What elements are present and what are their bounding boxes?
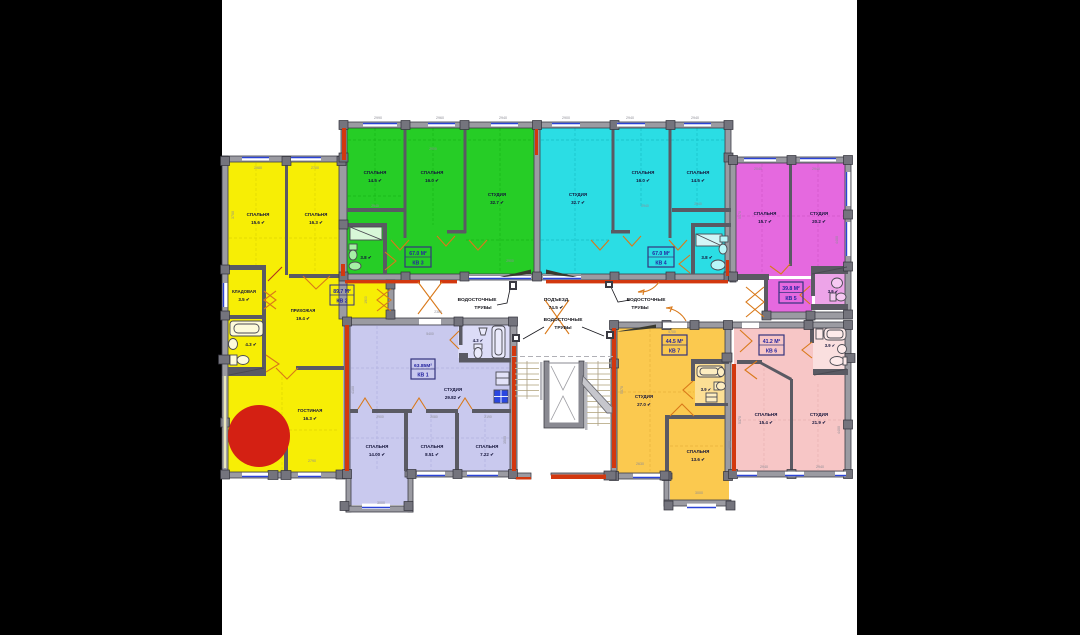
svg-text:ВОДОСТОЧНЫЕ: ВОДОСТОЧНЫЕ [544,317,584,323]
svg-text:2900: 2900 [506,259,514,263]
svg-text:3.5 ✔: 3.5 ✔ [238,297,250,302]
svg-text:ВОДОСТОЧНЫЕ: ВОДОСТОЧНЫЕ [627,297,667,303]
svg-text:ТРУБЫ: ТРУБЫ [631,305,648,311]
svg-text:16.3 ✔: 16.3 ✔ [309,220,323,225]
svg-text:15.4 ✔: 15.4 ✔ [759,420,773,425]
svg-text:2940: 2940 [760,465,768,469]
svg-text:67.0 М²: 67.0 М² [652,251,670,257]
svg-text:63.85М²: 63.85М² [414,363,432,369]
svg-text:2900: 2900 [562,116,570,120]
svg-text:4.3 ✔: 4.3 ✔ [473,338,484,343]
svg-text:СТУДИЯ: СТУДИЯ [488,192,506,197]
svg-text:СПАЛЬНЯ: СПАЛЬНЯ [476,444,499,449]
svg-text:15.7 ✔: 15.7 ✔ [758,219,772,224]
svg-text:4.3 ✔: 4.3 ✔ [245,342,257,347]
svg-text:СТУДИЯ: СТУДИЯ [810,412,828,417]
svg-text:2040: 2040 [754,167,762,171]
svg-text:5870: 5870 [620,386,624,394]
svg-text:3.9 ✔: 3.9 ✔ [701,387,712,392]
svg-text:КВ 4: КВ 4 [655,261,666,267]
svg-text:3.8 ✔: 3.8 ✔ [701,255,713,260]
svg-text:ПОДЪЕЗД: ПОДЪЕЗД [544,297,569,303]
svg-text:14.5 ✔: 14.5 ✔ [691,178,705,183]
svg-text:4100: 4100 [351,386,355,394]
svg-text:2380: 2380 [434,310,442,314]
svg-text:89.7 М²: 89.7 М² [333,289,351,295]
svg-text:44.5 М²: 44.5 М² [666,339,684,345]
svg-text:2940: 2940 [641,204,649,208]
svg-text:2990: 2990 [374,116,382,120]
svg-text:3.9 ✔: 3.9 ✔ [828,289,839,294]
svg-text:ТРУБЫ: ТРУБЫ [554,325,571,331]
svg-text:3000: 3000 [695,491,703,495]
svg-text:4400: 4400 [835,236,839,244]
svg-text:32.7 ✔: 32.7 ✔ [490,200,504,205]
svg-text:5400: 5400 [426,332,434,336]
svg-text:3.8 ✔: 3.8 ✔ [360,255,372,260]
svg-text:16.0 ✔: 16.0 ✔ [636,178,650,183]
svg-text:СПАЛЬНЯ: СПАЛЬНЯ [366,444,389,449]
svg-text:КВ 7: КВ 7 [669,349,680,355]
svg-text:8.51 ✔: 8.51 ✔ [425,452,439,457]
svg-text:13.6 ✔: 13.6 ✔ [691,457,705,462]
svg-text:74.5 ✔: 74.5 ✔ [549,305,564,311]
svg-text:2940: 2940 [691,116,699,120]
svg-text:2960: 2960 [436,116,444,120]
svg-text:29.82 ✔: 29.82 ✔ [445,395,462,400]
svg-text:39.8 М²: 39.8 М² [782,286,800,292]
svg-text:КВ 5: КВ 5 [785,296,796,302]
svg-text:КВ 6: КВ 6 [766,349,777,355]
svg-text:3000: 3000 [377,501,385,505]
svg-text:2190: 2190 [484,415,492,419]
svg-text:СПАЛЬНЯ: СПАЛЬНЯ [687,170,710,175]
svg-text:КЛАДОВАЯ: КЛАДОВАЯ [232,289,256,294]
svg-text:2630: 2630 [636,462,644,466]
svg-text:2980: 2980 [254,166,262,170]
svg-text:5700: 5700 [668,330,676,334]
svg-text:СТУДИЯ: СТУДИЯ [810,211,828,216]
svg-text:19.4 ✔: 19.4 ✔ [296,316,310,321]
svg-text:КВ 1: КВ 1 [417,373,428,379]
svg-text:21.9 ✔: 21.9 ✔ [812,420,826,425]
svg-text:41.2 М²: 41.2 М² [763,339,781,345]
svg-text:4000: 4000 [728,441,732,449]
svg-text:3700: 3700 [231,211,235,219]
svg-text:2900: 2900 [376,415,384,419]
svg-text:20.2 ✔: 20.2 ✔ [812,219,826,224]
svg-text:ПРИХОЖАЯ: ПРИХОЖАЯ [291,308,316,313]
svg-text:СПАЛЬНЯ: СПАЛЬНЯ [755,412,778,417]
svg-text:СТУДИЯ: СТУДИЯ [635,394,653,399]
svg-text:ГОСТИНАЯ: ГОСТИНАЯ [298,408,323,413]
svg-text:СПАЛЬНЯ: СПАЛЬНЯ [421,444,444,449]
svg-text:СПАЛЬНЯ: СПАЛЬНЯ [687,449,710,454]
svg-text:2940: 2940 [626,116,634,120]
svg-text:СТУДИЯ: СТУДИЯ [569,192,587,197]
svg-text:2940: 2940 [816,465,824,469]
svg-text:27.0 ✔: 27.0 ✔ [637,402,651,407]
svg-text:2940: 2940 [371,204,379,208]
svg-text:4400: 4400 [837,426,841,434]
svg-text:3500: 3500 [503,436,507,444]
svg-text:5170: 5170 [738,416,742,424]
svg-text:5170: 5170 [738,211,742,219]
svg-text:16.3 ✔: 16.3 ✔ [303,416,317,421]
svg-text:2900: 2900 [429,147,437,151]
svg-text:32.7 ✔: 32.7 ✔ [571,200,585,205]
svg-text:3.9 ✔: 3.9 ✔ [825,343,836,348]
svg-text:СПАЛЬНЯ: СПАЛЬНЯ [305,212,328,217]
svg-text:КВ 2: КВ 2 [336,299,347,305]
svg-text:2940: 2940 [812,167,820,171]
svg-text:67.0 М²: 67.0 М² [409,251,427,257]
svg-text:15.6 ✔: 15.6 ✔ [251,220,265,225]
svg-text:СПАЛЬНЯ: СПАЛЬНЯ [632,170,655,175]
svg-text:2700: 2700 [311,166,319,170]
svg-text:16.0 ✔: 16.0 ✔ [425,178,439,183]
svg-text:СПАЛЬНЯ: СПАЛЬНЯ [754,211,777,216]
svg-text:14.00 ✔: 14.00 ✔ [369,452,386,457]
svg-text:2080: 2080 [430,415,438,419]
svg-text:2940: 2940 [499,116,507,120]
svg-text:КВ 3: КВ 3 [412,261,423,267]
svg-text:СПАЛЬНЯ: СПАЛЬНЯ [421,170,444,175]
svg-text:ТРУБЫ: ТРУБЫ [474,305,491,311]
svg-text:1900: 1900 [364,296,368,304]
svg-text:СТУДИЯ: СТУДИЯ [444,387,462,392]
svg-text:7.22 ✔: 7.22 ✔ [480,452,494,457]
svg-text:СПАЛЬНЯ: СПАЛЬНЯ [247,212,270,217]
svg-text:2940: 2940 [694,202,702,206]
svg-text:14.5 ✔: 14.5 ✔ [368,178,382,183]
svg-text:2790: 2790 [308,459,316,463]
svg-text:СПАЛЬНЯ: СПАЛЬНЯ [364,170,387,175]
svg-text:ВОДОСТОЧНЫЕ: ВОДОСТОЧНЫЕ [458,297,498,303]
